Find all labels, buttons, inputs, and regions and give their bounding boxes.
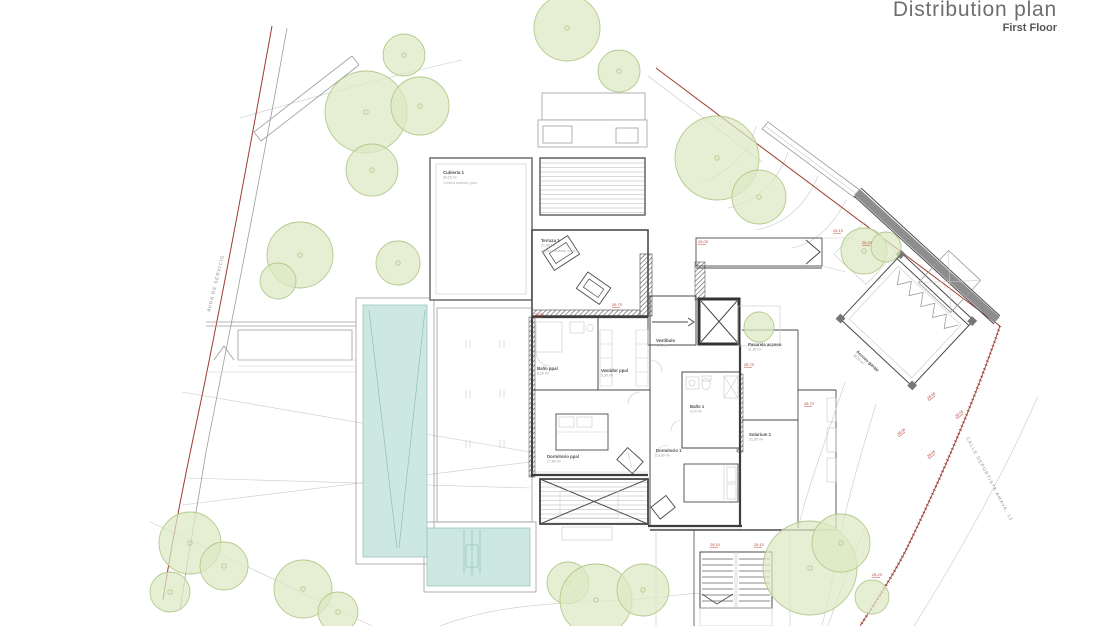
tree-icon [855,580,889,614]
level-marker: 28.80 [533,312,545,317]
tree-icon [744,312,774,342]
svg-text:28.50: 28.50 [895,426,907,437]
room-label-vestidor: Vestidor ppal5,30 m² [601,368,628,378]
svg-text:Baño ppal: Baño ppal [537,366,558,371]
site-plan-drawing: AVDA DE SERVICIO CALLE DEPORTISTA AMAYA,… [0,0,1110,626]
level-marker: 28.75 [743,362,755,367]
svg-text:6,20 m²: 6,20 m² [537,372,550,376]
level-marker: 29.15 [832,228,844,233]
tree-icon [871,232,901,262]
level-marker: 28.45 [925,448,937,459]
svg-text:28.80: 28.80 [533,312,545,317]
svg-text:28.55: 28.55 [953,408,965,419]
chair [651,496,675,520]
tree-icon [318,592,358,626]
bathroom-main-fixtures [536,322,593,366]
elevator-shaft [699,299,739,344]
title-block: Distribution plan First Floor [893,0,1057,34]
svg-text:Cubierta acabado madera: Cubierta acabado madera [541,249,578,253]
room-label-vestibulo: Vestíbulo4,90 m² [656,338,675,348]
level-marker: 29.10 [709,542,721,547]
svg-text:Pasarela acceso: Pasarela acceso [748,342,782,347]
svg-text:Vestidor ppal: Vestidor ppal [601,368,628,373]
svg-text:5,30 m²: 5,30 m² [601,374,614,378]
tree-icon [376,241,420,285]
tree-icon [598,50,640,92]
level-marker: 29.20 [861,240,873,245]
level-marker: 28.50 [895,426,907,437]
svg-text:28.70: 28.70 [803,401,815,406]
svg-text:29.20: 29.20 [861,240,873,245]
floor-plan-page: { "header": { "title": "Distribution pla… [0,0,1110,626]
svg-text:Vestíbulo: Vestíbulo [656,338,675,343]
tree-icon [346,144,398,196]
swimming-pool [356,298,536,592]
level-marker: 29.05 [697,239,709,244]
skylight-void [540,479,648,540]
svg-text:Dormitorio 1: Dormitorio 1 [656,448,682,453]
svg-text:28.25: 28.25 [871,572,883,577]
svg-text:Cubierta acabado grava: Cubierta acabado grava [443,181,477,185]
svg-text:4,10 m²: 4,10 m² [690,410,703,414]
svg-text:13,90 m²: 13,90 m² [656,454,671,458]
tree-icon [391,77,449,135]
room-label-pasarela: Pasarela acceso11,20 m² [748,342,782,352]
chaise [617,448,643,474]
svg-text:Terraza 1: Terraza 1 [541,238,560,243]
svg-text:29.05: 29.05 [697,239,709,244]
tree-icon [732,170,786,224]
svg-text:29.10: 29.10 [709,542,721,547]
room-label-banoppal: Baño ppal6,20 m² [537,366,558,376]
svg-text:21,40 m²: 21,40 m² [541,244,556,248]
bed-master [556,414,608,450]
tree-icon [617,564,669,616]
level-marker: 28.75 [611,302,623,307]
exterior-stairs-top [696,238,856,272]
page-title: Distribution plan [893,0,1057,20]
svg-text:30,15 m²: 30,15 m² [443,176,458,180]
svg-text:17,60 m²: 17,60 m² [547,460,562,464]
svg-text:29.10: 29.10 [753,542,765,547]
bed-1 [684,464,738,502]
svg-text:28.75: 28.75 [743,362,755,367]
svg-text:28.75: 28.75 [611,302,623,307]
level-marker: 28.25 [871,572,883,577]
room-label-dorm1: Dormitorio 113,90 m² [656,448,682,458]
tree-icon [260,263,296,299]
level-marker: 28.60 [925,390,937,401]
street-label-right: CALLE DEPORTISTA AMAYA, 12 [965,436,1014,522]
svg-text:11,20 m²: 11,20 m² [748,348,762,352]
svg-text:Cubierta 1: Cubierta 1 [443,170,465,175]
tree-icon [200,542,248,590]
pool-fence [206,322,356,372]
svg-text:28.60: 28.60 [925,390,937,401]
tree-icon [383,34,425,76]
roof-pergola [538,93,647,215]
page-subtitle: First Floor [893,22,1057,34]
level-marker: 28.70 [803,401,815,406]
level-marker: 28.55 [953,408,965,419]
svg-text:29.15: 29.15 [832,228,844,233]
svg-text:28.45: 28.45 [925,448,937,459]
svg-text:Dormitorio ppal: Dormitorio ppal [547,454,579,459]
pool-deck [437,308,532,522]
level-marker: 29.10 [753,542,765,547]
tree-icon [150,572,190,612]
svg-text:Solarium 1: Solarium 1 [749,432,772,437]
street-label-left: AVDA DE SERVICIO [206,254,225,312]
svg-text:21,30 m²: 21,30 m² [749,438,764,442]
svg-text:4,90 m²: 4,90 m² [656,344,669,348]
room-label-solarium: Solarium 121,30 m² [749,432,772,442]
room-label-dormppal: Dormitorio ppal17,60 m² [547,454,579,464]
tree-icon [812,514,870,572]
svg-text:Baño 1: Baño 1 [690,404,705,409]
